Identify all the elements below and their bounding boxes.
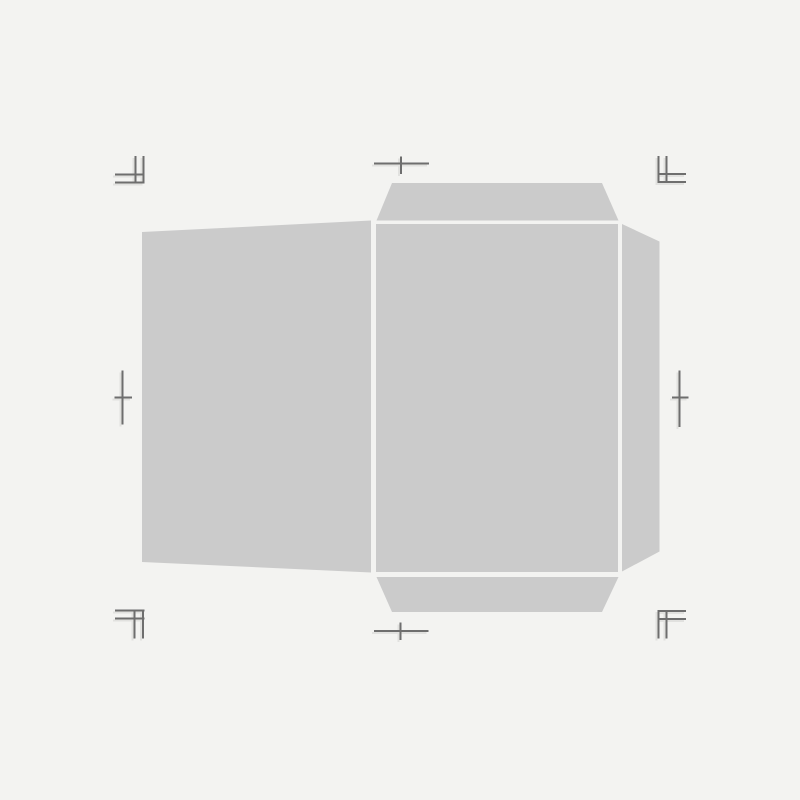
panel-top-flap[interactable]	[377, 183, 619, 221]
panel-center-main[interactable]	[376, 224, 618, 572]
dieline-panels	[142, 183, 660, 612]
dieline-drawing	[0, 0, 800, 800]
dieline-artboard	[0, 0, 800, 800]
panel-bottom-flap[interactable]	[377, 577, 619, 612]
panel-right-flap[interactable]	[622, 224, 660, 572]
panel-left-main[interactable]	[142, 221, 371, 573]
